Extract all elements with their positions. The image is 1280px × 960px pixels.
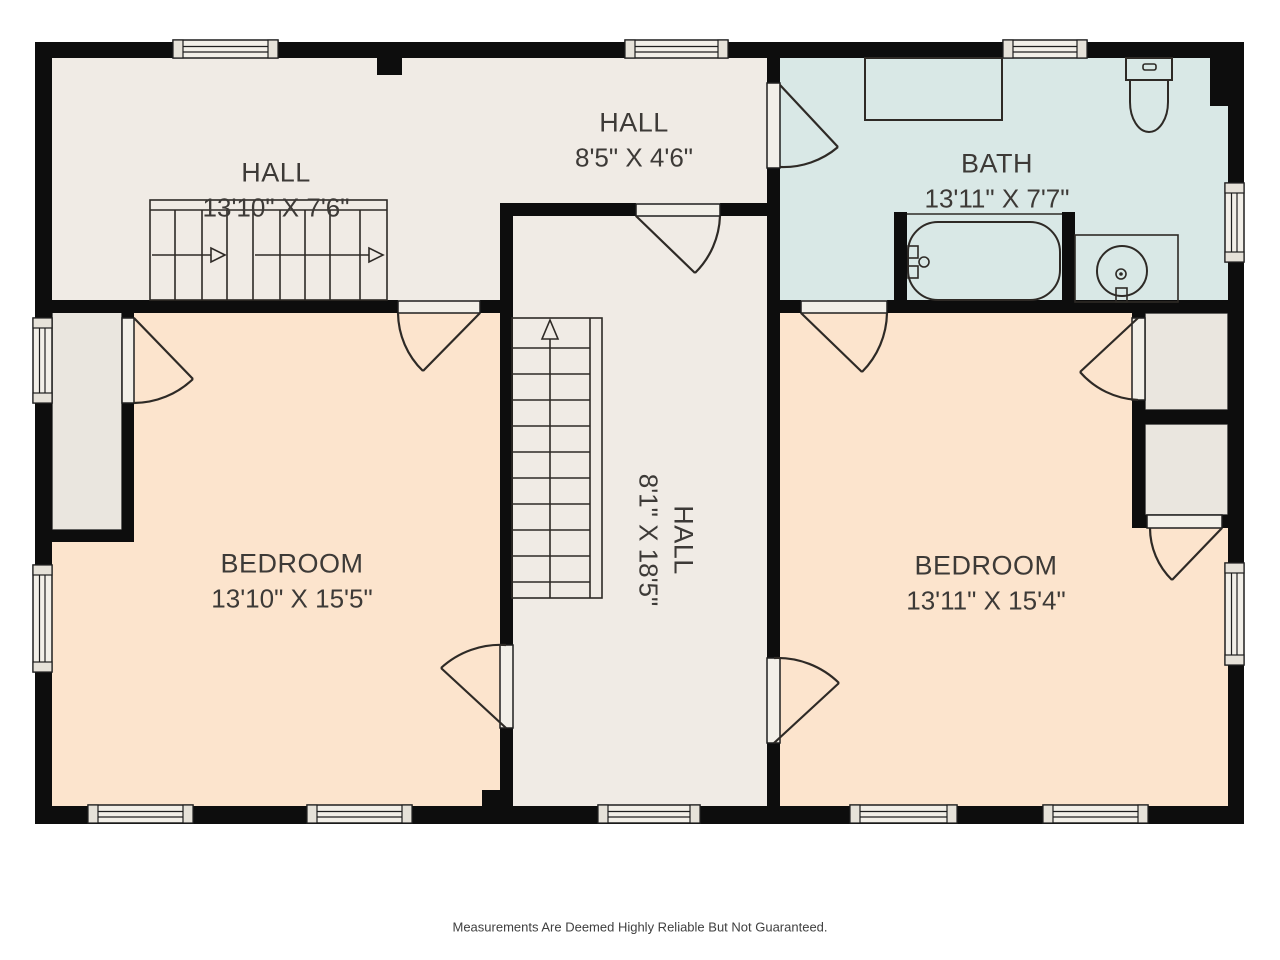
room-name: BEDROOM — [906, 549, 1065, 584]
window — [173, 40, 278, 58]
wall-segment — [377, 58, 402, 75]
window — [33, 565, 52, 672]
wall-segment — [1132, 424, 1145, 515]
wall-segment — [767, 300, 801, 313]
wall-segment — [1132, 410, 1228, 424]
room-label-bedroom-left: BEDROOM 13'10" X 15'5" — [211, 547, 372, 616]
wall-segment — [767, 168, 780, 658]
wall-segment — [1062, 212, 1075, 300]
room-label-hall-upper-mid: HALL 8'5" X 4'6" — [575, 106, 693, 175]
wall-segment — [35, 300, 398, 313]
room-label-bath: BATH 13'11" X 7'7" — [924, 147, 1069, 216]
wall-segment — [1228, 42, 1244, 824]
room-dims: 8'5" X 4'6" — [575, 141, 693, 175]
wall-segment — [767, 58, 780, 83]
wall-segment — [500, 203, 636, 216]
closet-b-floor — [1145, 424, 1228, 515]
wall-segment — [1222, 515, 1228, 528]
room-name: HALL — [575, 106, 693, 141]
room-label-bedroom-right: BEDROOM 13'11" X 15'4" — [906, 549, 1065, 618]
window — [33, 318, 52, 403]
window — [1003, 40, 1087, 58]
window — [625, 40, 728, 58]
wall-segment — [887, 300, 1244, 313]
room-label-hall-upper-left: HALL 13'10" X 7'6" — [203, 156, 350, 225]
window — [88, 805, 193, 823]
window — [1225, 183, 1244, 262]
wall-segment — [767, 743, 780, 806]
wall-segment — [894, 212, 907, 300]
window — [850, 805, 957, 823]
room-name: HALL — [666, 474, 701, 606]
wall-segment — [482, 790, 513, 806]
room-dims: 13'10" X 7'6" — [203, 191, 350, 225]
room-dims: 8'1" X 18'5" — [632, 474, 666, 606]
window — [307, 805, 412, 823]
wall-segment — [35, 42, 52, 824]
room-dims: 13'11" X 15'4" — [906, 584, 1065, 618]
closet-left-floor — [52, 312, 122, 530]
room-dims: 13'11" X 7'7" — [924, 182, 1069, 216]
wall-segment — [1132, 400, 1145, 410]
wall-segment — [122, 403, 134, 530]
wall-segment — [500, 213, 513, 645]
closet-a-floor — [1145, 313, 1228, 410]
disclaimer-text: Measurements Are Deemed Highly Reliable … — [452, 920, 827, 935]
room-name: BEDROOM — [211, 547, 372, 582]
window — [598, 805, 700, 823]
floor-plan-page: HALL 13'10" X 7'6" HALL 8'5" X 4'6" BATH… — [0, 0, 1280, 960]
room-dims: 13'10" X 15'5" — [211, 582, 372, 616]
window — [1043, 805, 1148, 823]
room-name: BATH — [924, 147, 1069, 182]
window — [1225, 563, 1244, 665]
wall-segment — [1210, 58, 1228, 106]
wall-segment — [52, 530, 134, 542]
room-name: HALL — [203, 156, 350, 191]
room-label-hall-center: HALL 8'1" X 18'5" — [632, 474, 701, 606]
wall-segment — [1132, 515, 1147, 528]
